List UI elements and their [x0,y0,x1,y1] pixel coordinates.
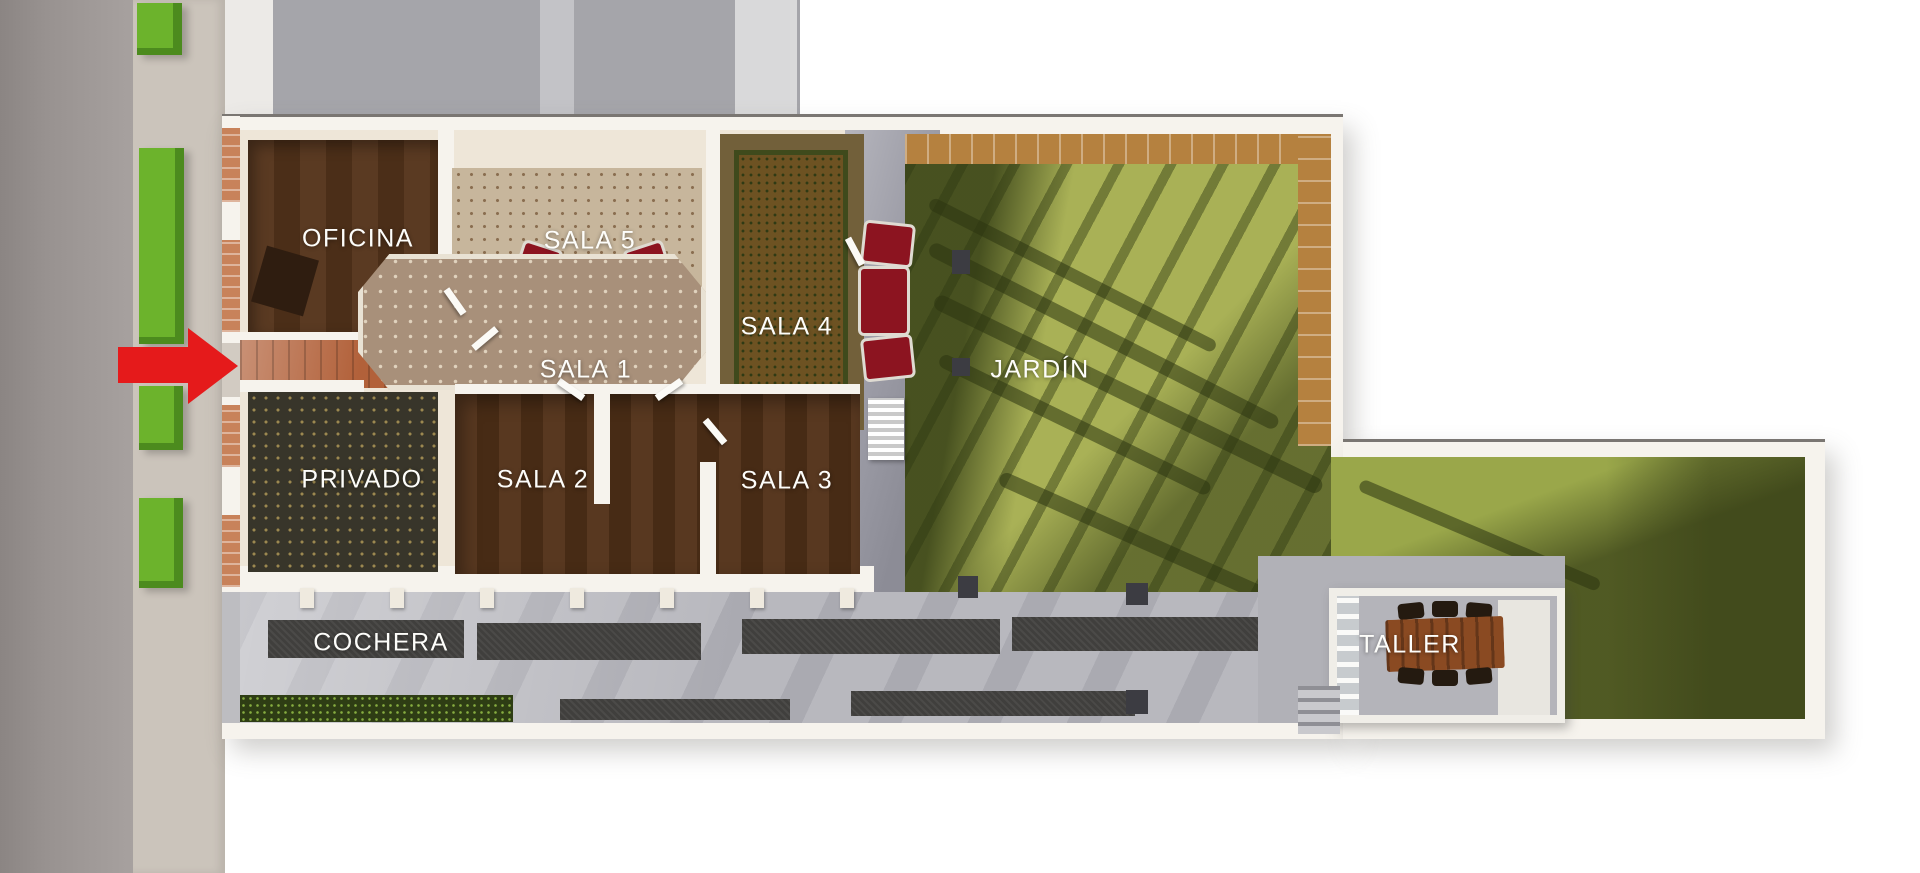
post [952,250,970,274]
post [1126,583,1148,605]
room-label-sala4: SALA 4 [741,315,833,340]
wall-entry-bottom [234,380,364,392]
room-label-cochera: COCHERA [313,631,449,656]
neighbor-roof [225,0,800,118]
room-label-sala2: SALA 2 [497,468,589,493]
driveway-strip [851,691,1135,716]
taller-chair [1432,670,1458,686]
neighbor-roof-highlight [735,0,797,118]
post [1126,690,1148,714]
facade-brick [222,128,240,202]
garden-tile-border-top [905,134,1331,164]
arrow-head [188,328,238,404]
garden-tile-border-right [1298,134,1331,446]
room-label-sala5: SALA 5 [544,229,636,254]
taller-steps [1298,686,1340,734]
roof-edge-line [222,114,1343,117]
wall-divider [594,394,610,504]
post [958,576,978,598]
pillar [480,588,494,608]
entrance-arrow-icon [118,328,238,404]
pillar [750,588,764,608]
post [952,358,970,376]
street [0,0,133,873]
room-label-oficina: OFICINA [302,227,414,252]
pillar [300,588,314,608]
roof-edge-line [1343,439,1825,442]
driveway-band [477,623,701,660]
pillar [660,588,674,608]
taller-glass-wall [1337,596,1359,715]
room-label-jardin: JARDÍN [990,358,1089,383]
facade-brick [222,240,240,332]
ac-unit [868,398,904,460]
planter [139,498,183,588]
taller-chair [1397,667,1424,685]
neighbor-roof-highlight [540,0,574,118]
driveway-band [742,619,1000,654]
wall-divider [700,462,716,574]
planter [137,3,182,55]
room-label-taller: TALLER [1359,633,1461,658]
patio-bench [860,219,916,268]
floor-plan-render: OFICINA SALA 5 SALA 4 SALA 1 PRIVADO SAL… [0,0,1920,873]
patio-bench [860,333,916,382]
hedge [233,695,513,722]
room-label-sala1: SALA 1 [540,358,632,383]
patio-bench [858,266,910,336]
pillar [390,588,404,608]
room-label-sala3: SALA 3 [741,469,833,494]
planter [139,148,184,344]
room-label-privado: PRIVADO [301,468,422,493]
facade-garage-gap [222,592,240,723]
neighbor-roof-highlight [225,0,273,118]
facade-brick [222,405,240,467]
taller-inner-wall [1498,600,1550,715]
driveway-strip [560,699,790,720]
taller-chair [1397,602,1425,621]
room-sala1-floor [358,254,706,390]
sala4-rug [734,150,848,414]
pillar [570,588,584,608]
taller-chair [1465,667,1492,685]
taller-chair [1432,601,1458,617]
pillar [840,588,854,608]
facade-brick [222,515,240,587]
arrow-shaft [118,347,190,383]
